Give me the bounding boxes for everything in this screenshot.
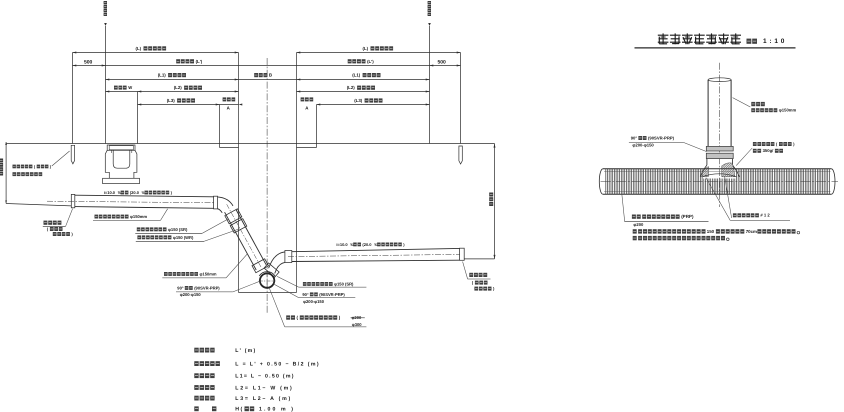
svg-text:1 : 1 0: 1 : 1 0	[763, 38, 785, 45]
svg-text:# 1 2: # 1 2	[760, 213, 770, 218]
svg-text:i=10.0: i=10.0	[104, 190, 116, 195]
svg-text:1.00 m ): 1.00 m )	[259, 407, 295, 412]
svg-text:W: W	[128, 85, 132, 90]
svg-text:90°: 90°	[177, 285, 184, 290]
svg-text:i=10.0: i=10.0	[336, 242, 348, 247]
svg-text:φ300: φ300	[352, 322, 362, 327]
svg-text:H (: H (	[235, 407, 242, 412]
svg-text:(L3): (L3)	[354, 98, 363, 103]
svg-text:90°: 90°	[631, 135, 638, 140]
svg-text:(L'): (L')	[367, 59, 374, 64]
svg-text:(90SVR-PRP): (90SVR-PRP)	[648, 135, 675, 140]
svg-text:500: 500	[438, 59, 447, 65]
svg-text:(L3): (L3)	[167, 98, 176, 103]
svg-text:L = L' + 0.50 − B/2 (m): L = L' + 0.50 − B/2 (m)	[235, 362, 320, 368]
svg-text:(20.0: (20.0	[362, 242, 372, 247]
svg-text:70cm: 70cm	[746, 229, 757, 234]
svg-text:(PRP): (PRP)	[681, 214, 694, 219]
svg-text:(L'): (L')	[196, 59, 203, 64]
svg-text:500: 500	[84, 59, 93, 65]
svg-text:φ200-φ150: φ200-φ150	[180, 292, 202, 297]
svg-text:150: 150	[707, 229, 715, 234]
svg-text:L3= L2− A (m): L3= L2− A (m)	[235, 396, 292, 402]
svg-text:350g/: 350g/	[763, 148, 775, 153]
svg-text:φ150mm: φ150mm	[779, 108, 797, 113]
svg-text:φ150 (SR): φ150 (SR)	[168, 227, 188, 232]
svg-text:(20.0: (20.0	[130, 190, 140, 195]
svg-text:(L2): (L2)	[347, 85, 356, 90]
svg-text:(L1): (L1)	[352, 73, 361, 78]
svg-text:φ150mm: φ150mm	[130, 214, 147, 219]
svg-text:φ150 (WR): φ150 (WR)	[173, 235, 194, 240]
svg-text:(L1): (L1)	[158, 73, 167, 78]
svg-text:φ150mm: φ150mm	[200, 271, 217, 276]
svg-text:(L2): (L2)	[174, 85, 183, 90]
svg-text:L' (m): L' (m)	[235, 348, 256, 354]
svg-text:L1= L − 0.50 (m): L1= L − 0.50 (m)	[235, 374, 294, 380]
svg-text:φ150 (SR): φ150 (SR)	[334, 281, 354, 286]
svg-text:B: B	[269, 73, 272, 78]
svg-text:φ200-φ150: φ200-φ150	[632, 142, 654, 147]
svg-text:90°: 90°	[302, 292, 309, 297]
svg-text:(90SVR-PRP): (90SVR-PRP)	[194, 285, 220, 290]
svg-text:φ200: φ200	[633, 222, 644, 227]
svg-text:(L): (L)	[136, 46, 142, 51]
svg-text:(90SVR-PRP): (90SVR-PRP)	[319, 292, 345, 297]
svg-text:(L): (L)	[363, 46, 369, 51]
svg-text:L2= L1− W (m): L2= L1− W (m)	[235, 385, 293, 391]
svg-text:φ200-φ150: φ200-φ150	[303, 299, 325, 304]
